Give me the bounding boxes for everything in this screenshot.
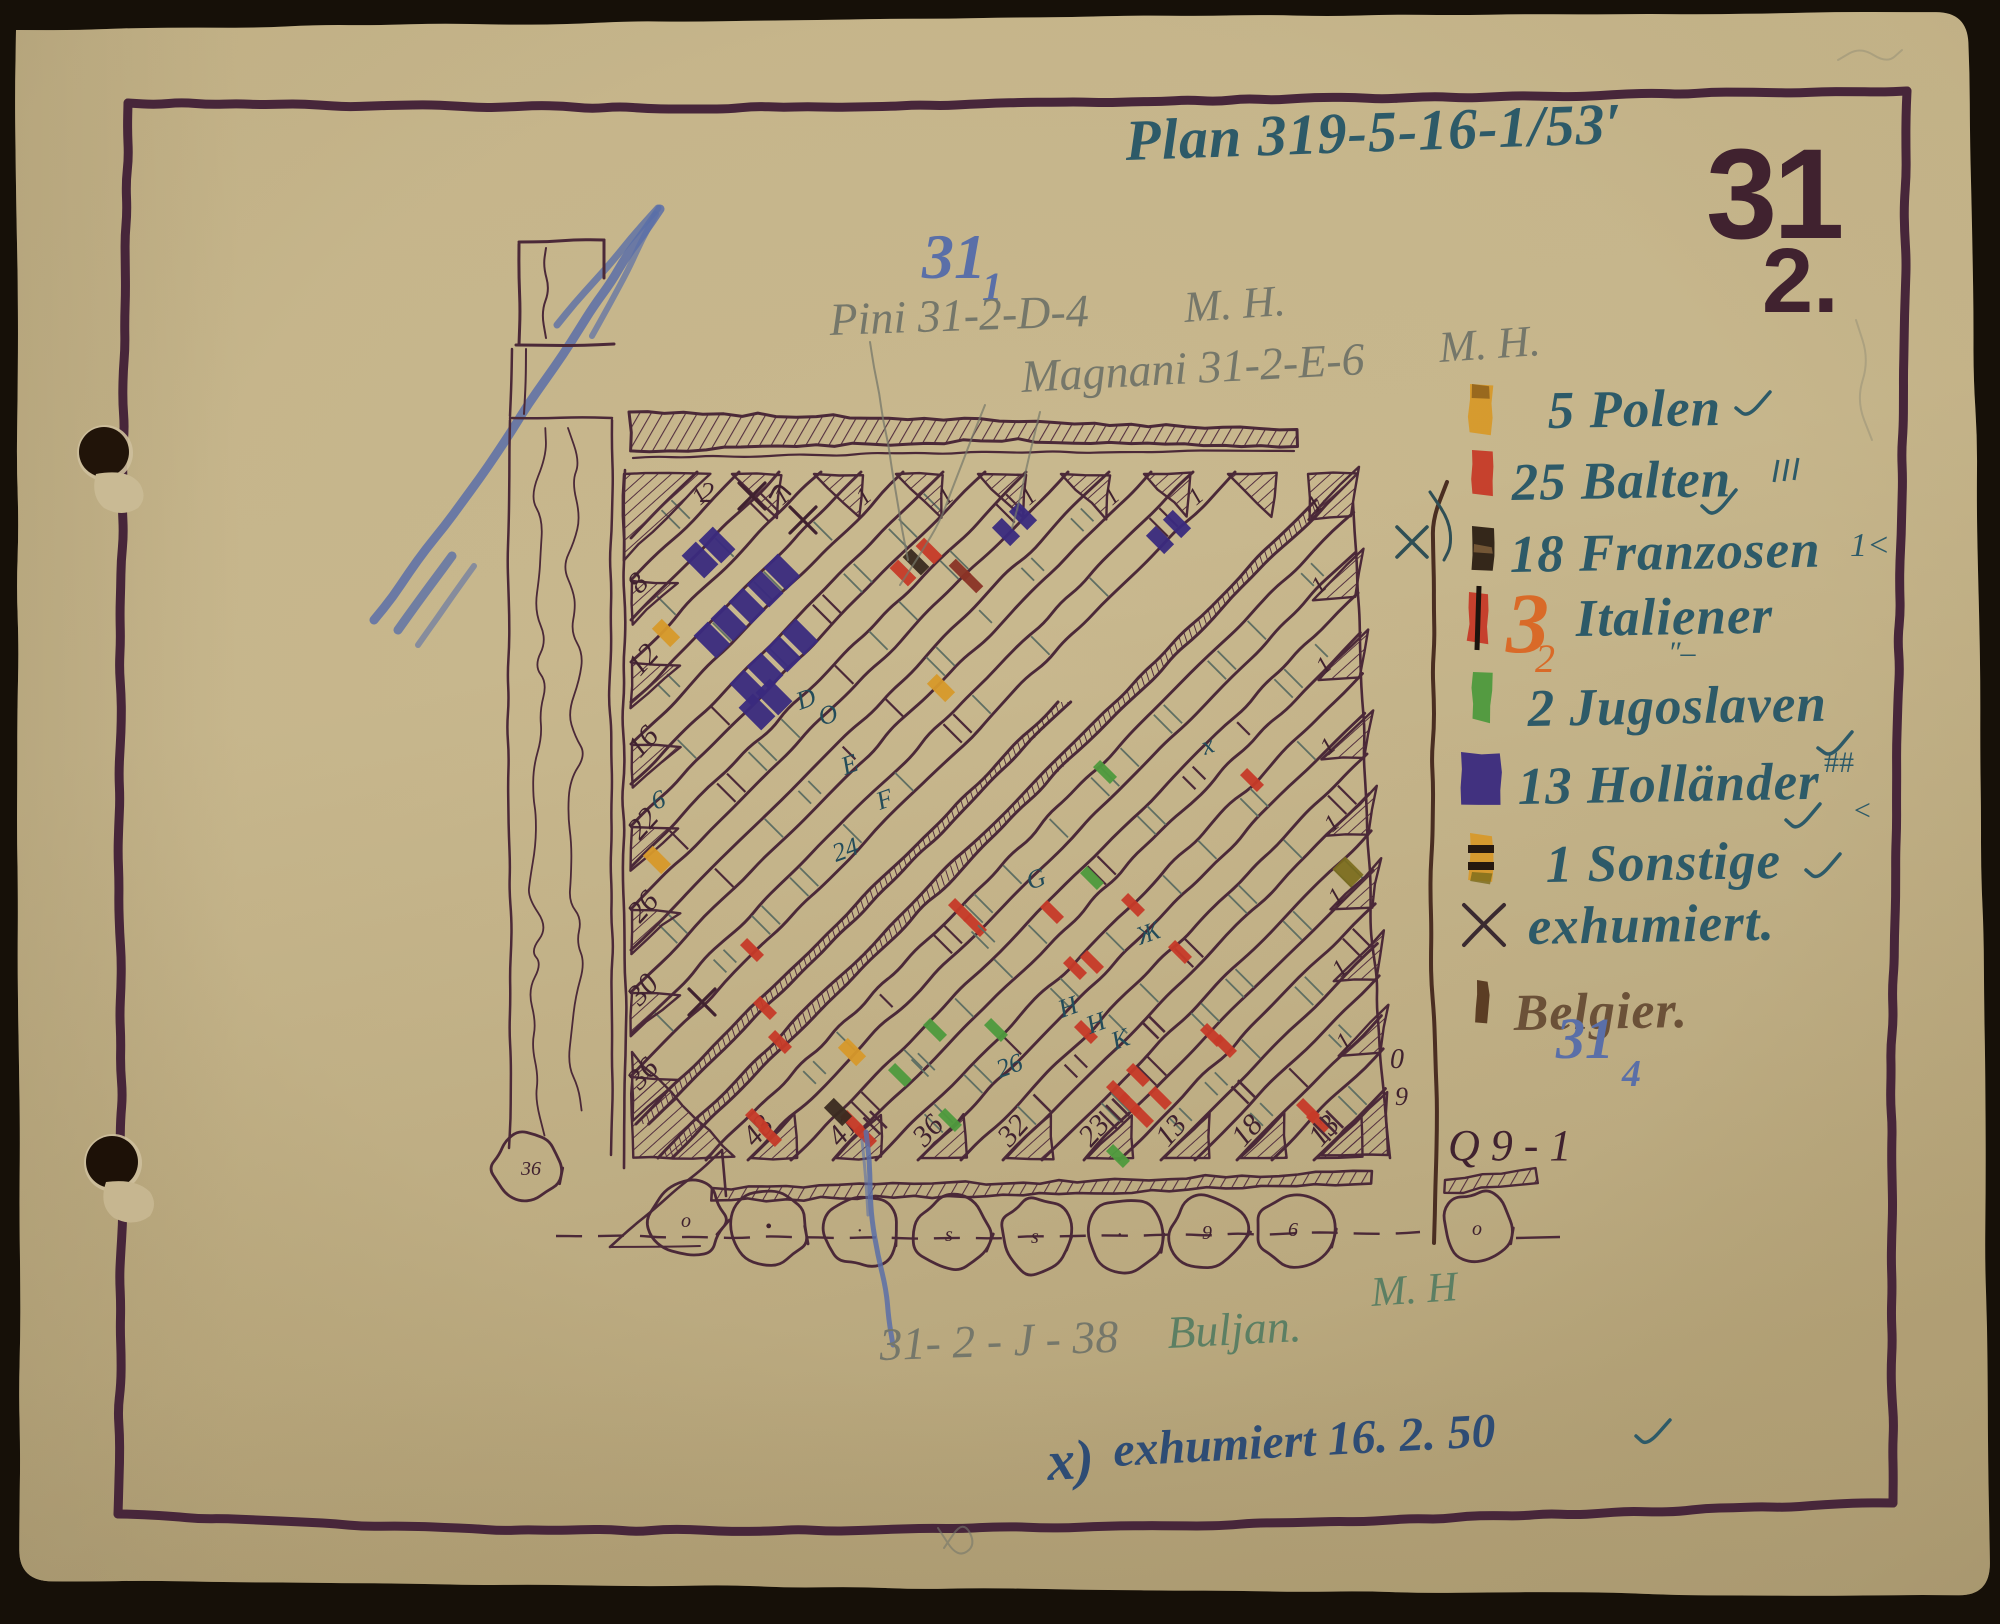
svg-text:exhumiert.: exhumiert. xyxy=(1527,894,1775,956)
svg-text:·: · xyxy=(1117,1224,1122,1246)
svg-text:36: 36 xyxy=(520,1158,541,1180)
svg-text:0: 0 xyxy=(1390,1044,1404,1075)
svg-text:2: 2 xyxy=(1535,636,1555,681)
svg-text:<: < xyxy=(1852,794,1872,827)
svg-text:x): x) xyxy=(1044,1429,1095,1493)
svg-text:4: 4 xyxy=(1621,1053,1641,1095)
svg-text:1 Sonstige: 1 Sonstige xyxy=(1545,832,1781,894)
svg-text:M. H.: M. H. xyxy=(1436,316,1542,372)
svg-text:##: ## xyxy=(1824,746,1854,779)
svg-text:31- 2 - J - 38: 31- 2 - J - 38 xyxy=(878,1311,1120,1370)
svg-text:o: o xyxy=(1472,1218,1482,1240)
svg-text:Q 9 - 1: Q 9 - 1 xyxy=(1448,1121,1571,1170)
svg-text:31: 31 xyxy=(921,221,986,292)
svg-text:M. H: M. H xyxy=(1368,1264,1461,1316)
svg-text:·: · xyxy=(857,1220,862,1242)
svg-text:25 Balten: 25 Balten xyxy=(1510,450,1732,512)
svg-text:6: 6 xyxy=(1288,1219,1298,1241)
svg-text:2 Jugoslaven: 2 Jugoslaven xyxy=(1526,675,1827,738)
svg-text:2.: 2. xyxy=(1762,230,1839,332)
svg-text:M. H.: M. H. xyxy=(1181,276,1287,332)
svg-text:″–: ″– xyxy=(1668,636,1696,669)
svg-text:18 Franzosen: 18 Franzosen xyxy=(1509,521,1821,584)
svg-text:2: 2 xyxy=(700,478,714,509)
svg-text:Pini 31-2-D-4: Pini 31-2-D-4 xyxy=(828,285,1090,345)
svg-text:s: s xyxy=(945,1224,953,1246)
svg-text:s: s xyxy=(1031,1226,1039,1248)
svg-text:9: 9 xyxy=(1202,1222,1212,1244)
svg-text:1<: 1< xyxy=(1850,527,1890,564)
svg-text:o: o xyxy=(681,1210,691,1232)
svg-text:Buljan.: Buljan. xyxy=(1166,1300,1303,1358)
svg-text:31: 31 xyxy=(1555,1006,1614,1071)
svg-text:•: • xyxy=(765,1216,772,1238)
svg-text:13 Holländer: 13 Holländer xyxy=(1517,753,1820,816)
svg-text:5 Polen: 5 Polen xyxy=(1547,379,1721,440)
svg-text:9: 9 xyxy=(1395,1082,1408,1111)
